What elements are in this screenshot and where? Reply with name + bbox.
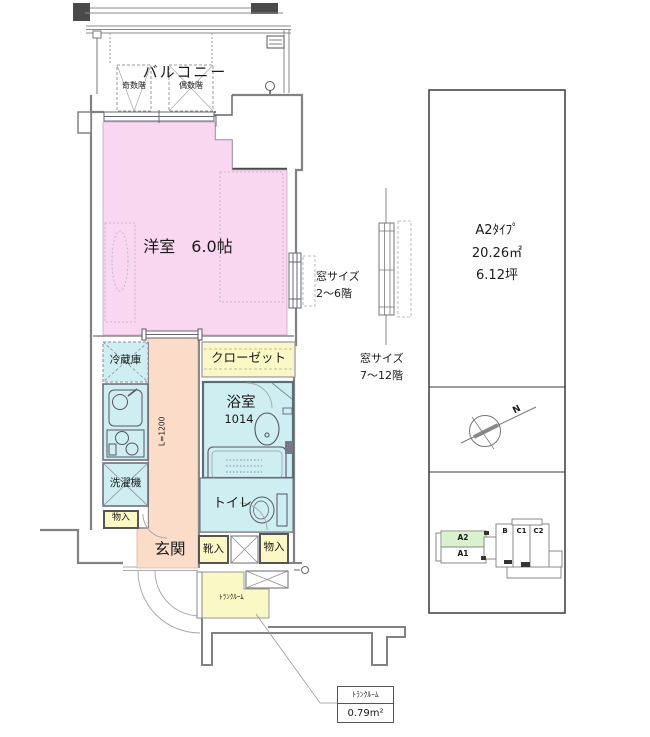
living-room-label: 洋室 6.0帖 bbox=[128, 238, 248, 256]
window-size-low-note: 窓サイズ 2～6階 bbox=[316, 268, 360, 302]
faucet-symbol bbox=[266, 82, 275, 91]
storage-right-label: 物入 bbox=[260, 541, 288, 553]
trunk-room-callout-area: 0.79m² bbox=[338, 704, 393, 723]
wall-hatch-left bbox=[73, 3, 90, 21]
hall-width-label: L=1200 bbox=[159, 411, 168, 451]
unit-type-label: A2ﾀｲﾌﾟ bbox=[429, 224, 565, 239]
bath-label: 浴室 bbox=[212, 395, 270, 412]
key-plan-unit-a1: A1 bbox=[443, 550, 483, 559]
closet-label: クローゼット bbox=[202, 351, 295, 365]
trunk-room-callout: ﾄﾗﾝｸﾙｰﾑ 0.79m² bbox=[337, 686, 394, 723]
window-elevation-detail bbox=[379, 188, 411, 345]
pipe-symbol bbox=[302, 567, 309, 574]
entrance-door-leaf bbox=[197, 572, 202, 618]
unit-area-tsubo: 6.12坪 bbox=[429, 269, 565, 284]
storage-left-label: 物入 bbox=[104, 513, 138, 523]
odd-floors-label: 奇数階 bbox=[117, 81, 151, 90]
key-plan-unit-a2: A2 bbox=[443, 534, 483, 543]
washer-label: 洗濯機 bbox=[103, 477, 148, 489]
shoes-label: 靴入 bbox=[199, 543, 228, 555]
entrance-door-arc-outer bbox=[138, 571, 200, 633]
floor-plan-drawing bbox=[0, 0, 650, 737]
corridor-wall-left bbox=[40, 530, 123, 563]
window-size-high-note: 窓サイズ 7～12階 bbox=[360, 350, 404, 384]
entrance-label: 玄関 bbox=[145, 541, 195, 559]
even-floors-label: 偶数階 bbox=[169, 81, 213, 90]
bath-mixer bbox=[285, 441, 293, 454]
balcony-label: バルコニー bbox=[135, 64, 235, 81]
living-room-area bbox=[103, 122, 287, 335]
key-plan-unit-c1: C1 bbox=[513, 527, 530, 535]
trunk-room-callout-name: ﾄﾗﾝｸﾙｰﾑ bbox=[338, 687, 393, 704]
side-window bbox=[289, 253, 301, 308]
upper-floor-window bbox=[379, 223, 394, 315]
key-plan-unit-b: B bbox=[497, 527, 513, 535]
toilet-label: トイレ bbox=[205, 497, 260, 512]
corridor-outline-bottom bbox=[202, 618, 405, 665]
trunk-room-label: ﾄﾗﾝｸﾙｰﾑ bbox=[204, 593, 259, 601]
fridge-label: 冷蔵庫 bbox=[103, 354, 148, 366]
kitchen-unit bbox=[103, 384, 148, 460]
balcony-railing bbox=[86, 26, 291, 33]
key-plan-unit-c2: C2 bbox=[530, 527, 547, 535]
wall-hatch-right bbox=[251, 3, 278, 14]
unit-area-sqm: 20.26㎡ bbox=[429, 247, 565, 262]
bath-size-label: 1014 bbox=[212, 413, 266, 426]
balcony-side-rail bbox=[284, 30, 289, 93]
entrance-door-arc-inner bbox=[155, 571, 200, 616]
floor-plan-page: バルコニー 奇数階 偶数階 洋室 6.0帖 窓サイズ 2～6階 窓サイズ 7～1… bbox=[0, 0, 650, 737]
